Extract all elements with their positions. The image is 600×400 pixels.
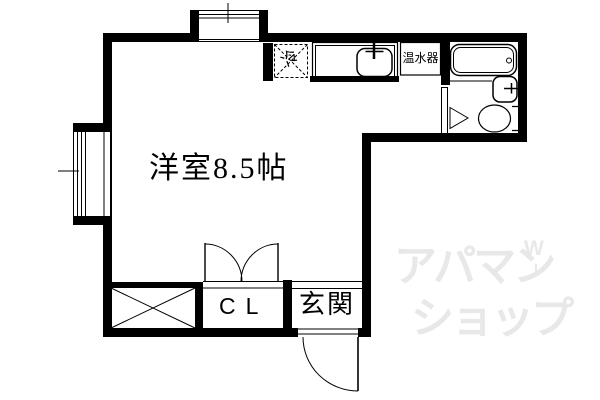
closet-door-arc-right (241, 244, 278, 282)
top-bay-right-jamb (259, 10, 268, 42)
entrance-step-lines (292, 282, 362, 289)
storage-top-wall (103, 282, 203, 288)
bathroom-door-leaf (442, 88, 448, 135)
bathroom-bottom-wall (362, 133, 527, 142)
storage-x-mark (111, 288, 195, 328)
floor-plan: アパマン W L ショップ (0, 0, 600, 400)
left-wall-upper (103, 33, 112, 132)
closet-opening-lines (203, 282, 283, 289)
room-size-label: 洋室8.5帖 (149, 154, 289, 184)
closet-right-wall (283, 280, 292, 337)
bottom-wall-right (358, 328, 371, 337)
right-wall (518, 33, 527, 141)
top-window-bay (191, 11, 268, 42)
entry-door-swing-arc (303, 337, 358, 391)
top-wall-left (103, 33, 199, 42)
entrance-threshold-lines (298, 329, 358, 334)
kitchen-stub-wall (263, 43, 273, 81)
left-bay-top-jamb (73, 123, 112, 132)
closet-door-arc-left (205, 244, 242, 282)
left-window-glazing (78, 132, 86, 216)
mid-right-wall (362, 133, 371, 337)
kitchen-counter-inner (316, 46, 395, 77)
bathroom-door-triangle (450, 108, 468, 129)
left-window-sill-lines (104, 132, 111, 216)
watermark-mark-l: L (534, 261, 543, 275)
toilet-bowl (479, 105, 511, 132)
bathroom-left-wall (441, 42, 450, 85)
closet-left-wall (195, 282, 203, 337)
closet-label: CL (219, 295, 268, 318)
bathtub-drain (507, 58, 512, 63)
bathtub-inner (454, 48, 514, 73)
top-window-glazing (199, 15, 259, 19)
left-wall-lower (103, 216, 112, 337)
top-wall-right (259, 33, 527, 42)
counter-front-wall (310, 76, 399, 82)
left-window-bay (74, 124, 112, 225)
top-bay-left-jamb (190, 10, 199, 42)
left-bay-bottom-jamb (73, 216, 112, 225)
water-heater-label: 温水器 (400, 52, 441, 64)
entrance-label: 玄関 (299, 292, 355, 318)
watermark-mark-w: W (524, 238, 544, 259)
watermark-brand-line2: ショップ (411, 298, 571, 341)
